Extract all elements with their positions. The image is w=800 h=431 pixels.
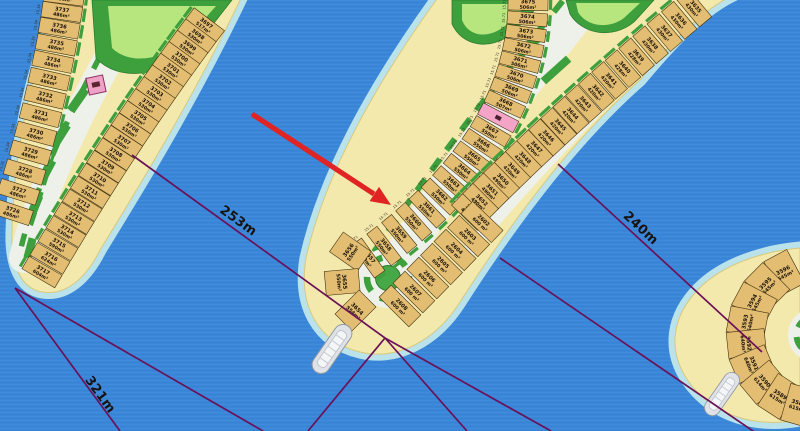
svg-text:15.71: 15.71	[501, 13, 506, 24]
plot-3655: 3655550m²	[324, 269, 360, 296]
svg-text:15.71: 15.71	[502, 0, 506, 10]
marker-pink-square	[86, 75, 106, 95]
plot-3675: 3675506m²15.71	[502, 0, 552, 11]
plot-map: 3738486m²15.343737486m²15.343736486m²15.…	[0, 0, 800, 431]
svg-text:506m²: 506m²	[519, 5, 536, 11]
